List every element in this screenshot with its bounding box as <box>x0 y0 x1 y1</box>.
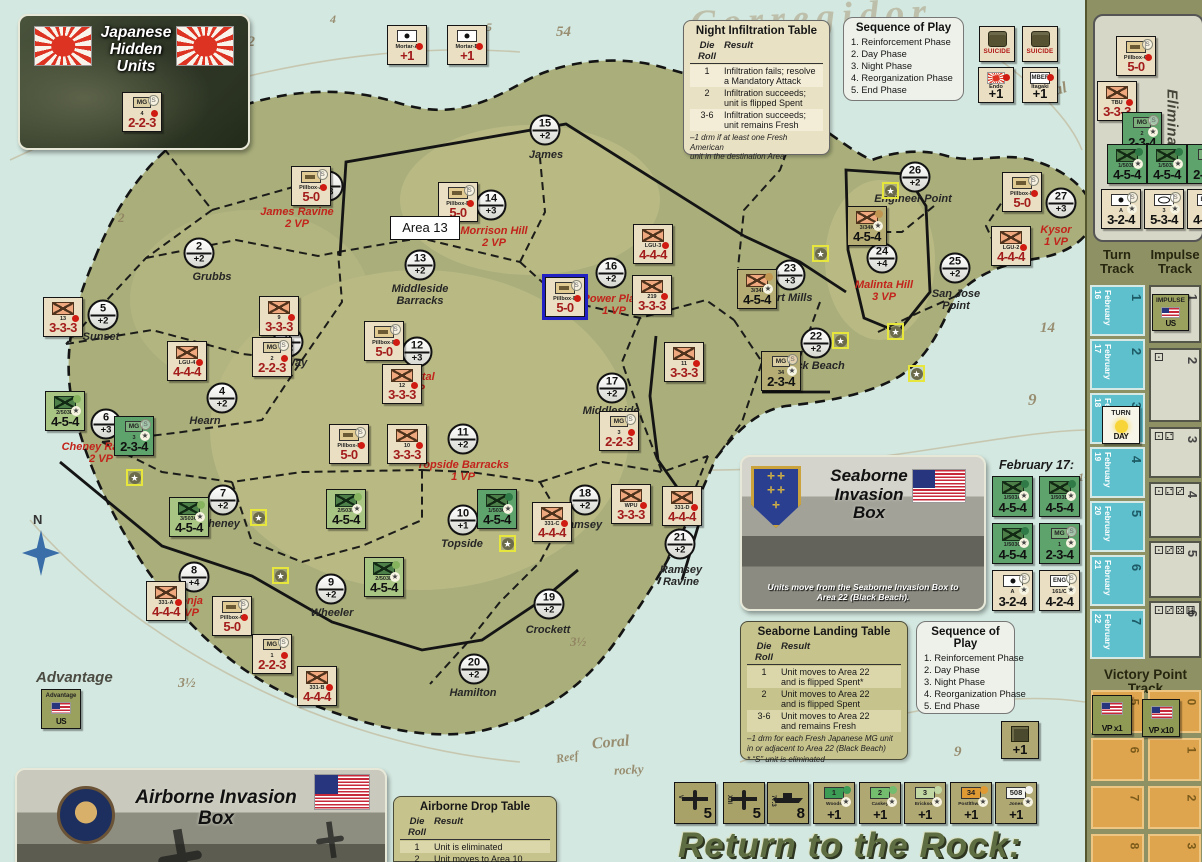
area-modifier: +2 <box>461 670 488 681</box>
area-modifier: +3 <box>478 206 505 217</box>
impulse-track-cell-5[interactable]: 5⚀⚂⚄ <box>1149 541 1201 598</box>
mortar-b-counter[interactable]: Mortar-B+1 <box>447 25 487 65</box>
1-counter[interactable]: MG1S2-2-3 <box>252 634 292 674</box>
331-b-counter[interactable]: 331-B4-4-4 <box>297 666 337 706</box>
331-d-counter[interactable]: 331-D4-4-4 <box>662 486 702 526</box>
lgu-2-counter[interactable]: LGU-24-4-4 <box>991 226 1031 266</box>
sequence-step: 1. Reinforcement Phase <box>924 652 1007 664</box>
objective-star-marker[interactable]: ★ <box>887 323 904 340</box>
area-18-circle[interactable]: 18+2 <box>570 485 601 516</box>
area-number: 10 <box>450 508 477 520</box>
objective-star-marker[interactable]: ★ <box>272 567 289 584</box>
area-26-circle[interactable]: 26+2 <box>900 162 931 193</box>
area-modifier: +2 <box>318 590 345 601</box>
sequence-step: 3. Night Phase <box>851 60 956 72</box>
area-2-circle[interactable]: 2+2 <box>184 238 215 269</box>
1-503b-counter[interactable]: 1/503B★4-5-4 <box>1107 144 1147 184</box>
area-number: 7 <box>210 488 237 500</box>
13-counter[interactable]: 133-3-3 <box>43 297 83 337</box>
sequence-step: 5. End Phase <box>924 700 1007 712</box>
equip-counter[interactable]: +1 <box>1001 721 1039 759</box>
area-26-name: Engineer Point <box>858 194 968 206</box>
impulse-track-cell-3[interactable]: 3⚀⚁ <box>1149 427 1201 478</box>
area-4-circle[interactable]: 4+2 <box>207 383 238 414</box>
area-15-name: James <box>491 150 601 162</box>
objective-star-marker[interactable]: ★ <box>250 509 267 526</box>
sequence-step: 3. Night Phase <box>924 676 1007 688</box>
area-modifier: +2 <box>667 545 694 556</box>
area-5-circle[interactable]: 5+2 <box>88 300 119 331</box>
area-modifier: +2 <box>90 316 117 327</box>
34-counter[interactable]: 34Postlthwait★+1 <box>950 782 992 824</box>
turn-track-cell-5[interactable]: 5February 20 <box>1090 501 1145 552</box>
sun-icon <box>1115 420 1128 433</box>
compass-north-label: N <box>33 512 42 527</box>
airborne-box-title: Airborne Invasion Box <box>121 788 311 830</box>
pillbox-g-counter[interactable]: Pillbox-GS5-0 <box>1116 36 1156 76</box>
table-row: 1Unit moves to Area 22 and is flipped Sp… <box>747 666 901 688</box>
3-counter[interactable]: MG3S★2-3-4 <box>114 416 154 456</box>
area-modifier: +2 <box>407 266 434 277</box>
turn-track-cell-6[interactable]: 6February 21 <box>1090 555 1145 606</box>
table-row: 3-6Infiltration succeeds; unit remains F… <box>690 109 823 131</box>
area-13-circle[interactable]: 13+2 <box>405 250 436 281</box>
xiii-counter[interactable]: XIII5 <box>723 782 765 824</box>
objective-star-marker[interactable]: ★ <box>126 469 143 486</box>
3-503g-counter[interactable]: 3/503G★4-5-4 <box>169 497 209 537</box>
pillbox-b-counter[interactable]: Pillbox-BS5-0 <box>545 277 585 317</box>
sequence-of-play-title: Sequence of Play <box>924 626 1007 650</box>
column-die-roll: Die Roll <box>747 640 781 663</box>
game-board: CorregidorCoralCoralrockyReef5412459141¾… <box>0 0 1202 862</box>
area-number: 25 <box>942 256 969 268</box>
area-25-name: San Jose Point <box>901 289 1011 313</box>
mortar-a-counter[interactable]: Mortar-A+1 <box>387 25 427 65</box>
area-number: 5 <box>90 303 117 315</box>
2-503e-counter[interactable]: 2/503E★4-5-4 <box>364 557 404 597</box>
area-modifier: +2 <box>186 254 213 265</box>
airborne-invasion-box: Airborne Invasion Box <box>15 768 387 862</box>
area-15-circle[interactable]: 15+2 <box>530 115 561 146</box>
a-counter[interactable]: AS★3-2-4 <box>992 570 1033 611</box>
area-7-circle[interactable]: 7+2 <box>208 485 239 516</box>
table-note: * “S” unit is eliminated <box>747 755 901 764</box>
sequence-of-play-top: Sequence of Play1. Reinforcement Phase2.… <box>843 17 964 101</box>
area-21-name: Ramsey Ravine <box>626 565 736 589</box>
area-modifier: +3 <box>777 276 804 287</box>
objective-star-marker[interactable]: ★ <box>499 535 516 552</box>
v-counter[interactable]: V5 <box>674 782 716 824</box>
area-27-circle[interactable]: 27+3 <box>1046 188 1077 219</box>
area-modifier: +2 <box>532 131 559 142</box>
japan-flag-icon <box>34 26 92 66</box>
objective-star-marker[interactable]: ★ <box>908 365 925 382</box>
pillbox-d-counter[interactable]: Pillbox-DS5-0 <box>364 321 404 361</box>
column-die-roll: Die Roll <box>400 815 434 838</box>
game-title: Return to the Rock: <box>678 826 1098 862</box>
itagaki-counter[interactable]: MBEFItagaki+1 <box>1022 67 1058 103</box>
3-counter[interactable]: MG3S2-2-3 <box>599 411 639 451</box>
area-number: 17 <box>599 376 626 388</box>
area-17-circle[interactable]: 17+2 <box>597 373 628 404</box>
february-17-label: February 17: <box>999 458 1074 472</box>
331-a-counter[interactable]: 331-A4-4-4 <box>146 581 186 621</box>
area-number: 16 <box>598 261 625 273</box>
vp-cell-x1-6[interactable]: 6 <box>1091 738 1144 781</box>
turnday-counter[interactable]: TURNDAY <box>1102 406 1140 444</box>
vpx10-counter[interactable]: VP x10 <box>1142 699 1180 737</box>
area-number: 4 <box>209 386 236 398</box>
area-23-circle[interactable]: 23+3 <box>775 260 806 291</box>
area-modifier: +3 <box>404 353 431 364</box>
area-number: 23 <box>777 263 804 275</box>
us-flag-icon <box>51 702 71 714</box>
seaborne-box-note: Units move from the Seaborne Invasion Bo… <box>748 582 978 603</box>
objective-star-marker[interactable]: ★ <box>812 245 829 262</box>
endo-counter[interactable]: Endo+1 <box>978 67 1014 103</box>
turn-track-title: Turn Track <box>1089 248 1145 275</box>
10-counter[interactable]: 103-3-3 <box>387 424 427 464</box>
c47-plane-icon <box>153 826 206 862</box>
area-modifier: +2 <box>902 178 929 189</box>
seaborne-landing-table: Seaborne Landing TableDie RollResult1Uni… <box>740 621 908 760</box>
area-number: 11 <box>450 427 477 439</box>
area-modifier: +2 <box>598 274 625 285</box>
area-10-circle[interactable]: 10+1 <box>448 505 479 536</box>
pillbox-c-counter[interactable]: Pillbox-CS5-0 <box>212 596 252 636</box>
equipment-icon <box>1011 726 1029 742</box>
pillbox-h-counter[interactable]: Pillbox-HS5-0 <box>1002 172 1042 212</box>
lgu-3-counter[interactable]: LGU-34-4-4 <box>633 224 673 264</box>
3-34k-counter[interactable]: 3/34K★4-5-4 <box>847 206 887 246</box>
2-counter[interactable]: MG2S2-2-3 <box>252 337 292 377</box>
area-13-tooltip: Area 13 <box>390 216 460 240</box>
34-counter[interactable]: MG34S★2-3-4 <box>761 351 801 391</box>
vpx1-counter[interactable]: VP x1 <box>1092 695 1132 735</box>
area-1-name: James Ravine 2 VP <box>242 207 352 231</box>
c47-plane-icon <box>314 820 347 860</box>
area-number: 19 <box>536 592 563 604</box>
turn-track-cell-4[interactable]: 4February 19 <box>1090 447 1145 498</box>
table-row: 2Unit moves to Area 22 and is flipped Sp… <box>747 688 901 710</box>
suicide-vest-icon <box>1031 31 1050 47</box>
turn-track-cell-2[interactable]: 2February 17 <box>1090 339 1145 390</box>
2-counter[interactable]: 2Caskey★+1 <box>859 782 901 824</box>
area-modifier: +2 <box>572 501 599 512</box>
1-503c-counter[interactable]: 1/503C★4-5-4 <box>477 489 517 529</box>
11-counter[interactable]: 113-3-3 <box>664 342 704 382</box>
area-modifier: +3 <box>1048 204 1075 215</box>
a-counter[interactable]: AS★3-2-4 <box>1101 189 1141 229</box>
lgu-4-counter[interactable]: LGU-44-4-4 <box>167 341 207 381</box>
seaborne-box-title: Seaborne Invasion Box <box>814 467 924 523</box>
area-number: 20 <box>461 657 488 669</box>
area-modifier: +4 <box>869 259 896 270</box>
area-number: 13 <box>407 253 434 265</box>
objective-star-marker[interactable]: ★ <box>832 332 849 349</box>
2-503f-counter[interactable]: 2/503F★4-5-4 <box>326 489 366 529</box>
331-c-counter[interactable]: 331-C4-4-4 <box>532 502 572 542</box>
sequence-step: 4. Reorganization Phase <box>924 688 1007 700</box>
area-21-circle[interactable]: 21+2 <box>665 529 696 560</box>
sequence-step: 1. Reinforcement Phase <box>851 36 956 48</box>
area-number: 21 <box>667 532 694 544</box>
unit-shield-icon: ✛ ✛✛ ✛✛ <box>751 466 801 528</box>
1-counter[interactable]: 1Woods★+1 <box>813 782 855 824</box>
area-number: 15 <box>532 118 559 130</box>
table-title: Airborne Drop Table <box>400 801 550 813</box>
impulseus-counter[interactable]: IMPULSEUS <box>1152 294 1189 331</box>
table-title: Seaborne Landing Table <box>747 626 901 638</box>
1-503a-counter[interactable]: 1/503A★4-5-4 <box>992 476 1033 517</box>
area-modifier: +2 <box>210 501 237 512</box>
area-22-circle[interactable]: 22+2 <box>801 328 832 359</box>
sequence-step: 5. End Phase <box>851 84 956 96</box>
area-number: 12 <box>404 340 431 352</box>
turn-track-cell-7[interactable]: 7February 22 <box>1090 609 1145 659</box>
161-c-counter[interactable]: ENG161/CS★4-2-4 <box>1039 570 1080 611</box>
area-20-name: Hamilton <box>418 688 528 700</box>
area-number: 22 <box>803 331 830 343</box>
us-flag-icon <box>314 774 370 810</box>
night-infiltration-table: Night Infiltration TableDie RollResult1I… <box>683 20 830 155</box>
paratrooper-patch-icon <box>57 786 115 844</box>
table-title: Night Infiltration Table <box>690 25 823 37</box>
area-number: 8 <box>181 565 208 577</box>
impulse-track-cell-4[interactable]: 4⚀⚁⚂ <box>1149 482 1201 538</box>
wpu-counter[interactable]: WPU3-3-3 <box>611 484 651 524</box>
3-counter[interactable]: 3Erickson★+1 <box>904 782 946 824</box>
turn-track-cell-1[interactable]: 1February 16 <box>1090 285 1145 336</box>
vp-cell-x10-1[interactable]: 1 <box>1148 738 1201 781</box>
advantage-label: Advantage <box>36 669 113 686</box>
table-note: –1 drm if at least one Fresh American un… <box>690 133 823 161</box>
suicide-counter[interactable]: SUICIDE <box>1022 26 1058 62</box>
area-modifier: +2 <box>803 344 830 355</box>
161-counter[interactable]: ENG161S★4-2-4 <box>1187 189 1202 229</box>
table-row: 1Infiltration fails; resolve a Mandatory… <box>690 65 823 87</box>
area-25-circle[interactable]: 25+2 <box>940 253 971 284</box>
table-row: 2Unit moves to Area 10 and is flipped Sp… <box>400 853 550 862</box>
japan-flag-icon <box>176 26 234 66</box>
suicide-vest-icon <box>988 31 1007 47</box>
vp-cell-x1-7[interactable]: 7 <box>1091 786 1144 829</box>
1-503b-counter[interactable]: 1/503B★4-5-4 <box>1039 476 1080 517</box>
us-flag-icon <box>912 469 966 503</box>
1-counter[interactable]: MG1S★2-3-4 <box>1039 523 1080 564</box>
area-11-circle[interactable]: 11+2 <box>448 424 479 455</box>
column-result: Result <box>724 39 823 62</box>
sequence-of-play-bottom: Sequence of Play1. Reinforcement Phase2.… <box>916 621 1015 714</box>
suicide-counter[interactable]: SUICIDE <box>979 26 1015 62</box>
ship-icon <box>773 793 803 803</box>
219-counter[interactable]: 2193-3-3 <box>632 275 672 315</box>
77-3-counter[interactable]: 77.38 <box>767 782 809 824</box>
1-counter[interactable]: MG1S★2-3-4 <box>1187 144 1202 184</box>
advantage-counter[interactable]: AdvantageUS <box>41 689 81 729</box>
area-number: 24 <box>869 246 896 258</box>
area-modifier: +2 <box>209 399 236 410</box>
2-503d-counter[interactable]: 2/503D★4-5-4 <box>45 391 85 431</box>
area-number: 26 <box>902 165 929 177</box>
area-modifier: +1 <box>450 521 477 532</box>
us-flag-icon <box>1101 702 1123 715</box>
vp-cell-x10-2[interactable]: 2 <box>1148 786 1201 829</box>
vp-cell-x10-3[interactable]: 3 <box>1148 834 1201 862</box>
9-counter[interactable]: 93-3-3 <box>259 296 299 336</box>
sequence-step: 2. Day Phase <box>924 664 1007 676</box>
table-row: 1Unit is eliminated <box>400 841 550 853</box>
pillbox-a-counter[interactable]: Pillbox-AS5-0 <box>291 166 331 206</box>
area-2-name: Grubbs <box>157 272 267 284</box>
table-row: 2Infiltration succeeds; unit is flipped … <box>690 87 823 109</box>
4-counter[interactable]: MG4S2-2-3 <box>122 92 162 132</box>
area-24-circle[interactable]: 24+4 <box>867 243 898 274</box>
column-die-roll: Die Roll <box>690 39 724 62</box>
objective-star-marker[interactable]: ★ <box>882 182 899 199</box>
sequence-step: 2. Day Phase <box>851 48 956 60</box>
pillbox-f-counter[interactable]: Pillbox-FS5-0 <box>329 424 369 464</box>
area-modifier: +2 <box>450 440 477 451</box>
area-13-name: Middleside Barracks <box>365 284 475 308</box>
area-19-name: Crockett <box>493 625 603 637</box>
area-12-circle[interactable]: 12+3 <box>402 337 433 368</box>
airborne-drop-table: Airborne Drop TableDie RollResult1Unit i… <box>393 796 557 862</box>
3-34i-counter[interactable]: 3/34I★4-5-4 <box>737 269 777 309</box>
508-counter[interactable]: 508Jones★+1 <box>995 782 1037 824</box>
table-note: –1 drm for each Fresh Japanese MG unit i… <box>747 734 901 752</box>
area-number: 27 <box>1048 191 1075 203</box>
vp-cell-x1-8[interactable]: 8 <box>1091 834 1144 862</box>
sequence-step: 4. Reorganization Phase <box>851 72 956 84</box>
3-counter[interactable]: 3S★5-3-4 <box>1144 189 1184 229</box>
area-9-circle[interactable]: 9+2 <box>316 574 347 605</box>
table-row: 3-6Unit moves to Area 22 and remains Fre… <box>747 710 901 732</box>
area-19-circle[interactable]: 19+2 <box>534 589 565 620</box>
12-counter[interactable]: 123-3-3 <box>382 364 422 404</box>
area-number: 18 <box>572 488 599 500</box>
area-20-circle[interactable]: 20+2 <box>459 654 490 685</box>
area-16-circle[interactable]: 16+2 <box>596 258 627 289</box>
impulse-track-cell-2[interactable]: 2⚀ <box>1149 348 1201 422</box>
area-modifier: +2 <box>536 605 563 616</box>
area-modifier: +2 <box>942 269 969 280</box>
impulse-track-cell-6[interactable]: 6⚀⚂⚄⚅ <box>1149 601 1201 658</box>
area-number: 9 <box>318 577 345 589</box>
area-number: 2 <box>186 241 213 253</box>
us-flag-icon <box>1151 706 1173 719</box>
1-503c-counter[interactable]: 1/503C★4-5-4 <box>992 523 1033 564</box>
area-modifier: +2 <box>599 389 626 400</box>
seaborne-invasion-box: ✛ ✛✛ ✛✛ Seaborne Invasion Box Units move… <box>740 455 986 611</box>
area-14-circle[interactable]: 14+3 <box>476 190 507 221</box>
1-503a-counter[interactable]: 1/503A★4-5-4 <box>1147 144 1187 184</box>
japanese-hidden-units-title: Japanese Hidden Units <box>98 24 174 75</box>
us-flag-icon <box>1161 307 1180 318</box>
area-number: 14 <box>478 193 505 205</box>
area-9-name: Wheeler <box>277 608 387 620</box>
area-4-name: Hearn <box>150 416 260 428</box>
column-result: Result <box>434 815 550 838</box>
impulse-track-title: Impulse Track <box>1147 248 1202 275</box>
column-result: Result <box>781 640 901 663</box>
sequence-of-play-title: Sequence of Play <box>851 22 956 34</box>
